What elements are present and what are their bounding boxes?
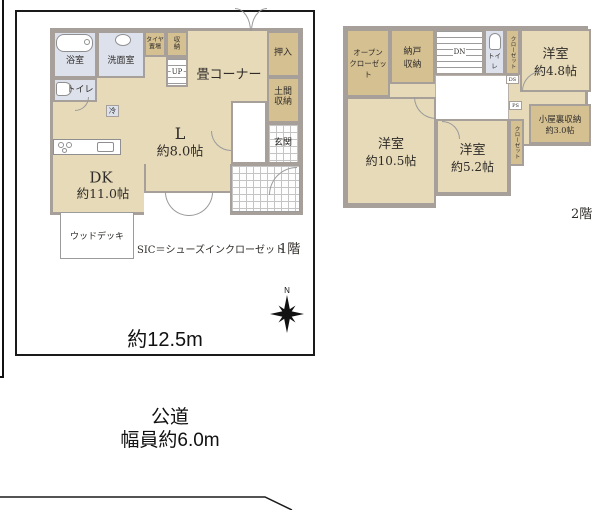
room-105-name: 洋室 bbox=[378, 133, 404, 152]
room-52-name: 洋室 bbox=[459, 139, 485, 158]
room-52-size: 約5.2帖 bbox=[451, 158, 494, 175]
stairs-down-label: DN bbox=[453, 48, 467, 56]
toilet-1f-label: トイレ bbox=[66, 85, 93, 95]
ps-label: PS bbox=[512, 103, 519, 109]
hallway-2f bbox=[435, 75, 509, 121]
floor2-plan: オープン クローゼット 納戸 収納 DN トイレ クローゼット DS 洋室 約4… bbox=[343, 26, 588, 208]
living-size-label: 約8.0帖 bbox=[157, 146, 204, 161]
refrigerator-label: 冷 bbox=[109, 106, 116, 116]
site-width-label: 約12.5m bbox=[15, 323, 315, 352]
toilet-fixture-2f bbox=[489, 33, 501, 50]
closet-b-label: クローゼット bbox=[513, 126, 521, 159]
stairs-up-label: UP bbox=[171, 69, 184, 77]
room-105-size: 約10.5帖 bbox=[366, 152, 417, 169]
genkan-label: 玄関 bbox=[274, 138, 292, 148]
floor1-plan: 冷 浴室 洗面室 トイレ タイヤ 置場 収 納 UP 畳コーナー 押入 土間 収… bbox=[50, 28, 303, 215]
floorplan-page: 冷 浴室 洗面室 トイレ タイヤ 置場 収 納 UP 畳コーナー 押入 土間 収… bbox=[0, 0, 600, 510]
door-arc-hall-ld bbox=[211, 131, 231, 151]
room-attic-storage: 小屋裏収納 約3.0帖 bbox=[529, 104, 591, 144]
tire-storage-label: タイヤ 置場 bbox=[146, 37, 164, 50]
compass-n-label: N bbox=[284, 286, 290, 295]
kitchen-sink bbox=[97, 142, 114, 152]
left-boundary-line bbox=[2, 0, 4, 378]
living-name-label: L bbox=[175, 125, 186, 143]
bath-drain bbox=[84, 39, 90, 45]
washroom-label: 洗面室 bbox=[107, 56, 134, 66]
room-48-name: 洋室 bbox=[542, 43, 568, 62]
wash-sink bbox=[115, 34, 131, 46]
wood-deck: ウッドデッキ bbox=[60, 212, 134, 259]
ds-box: DS bbox=[506, 75, 519, 84]
ps-box: PS bbox=[509, 101, 522, 110]
hallway-1f bbox=[231, 101, 267, 164]
oshiire-label: 押入 bbox=[274, 48, 292, 58]
stairs-down: DN bbox=[435, 29, 484, 75]
doma-storage-label: 土間 収納 bbox=[274, 87, 292, 107]
floor1-label: 1階 bbox=[279, 238, 300, 257]
nando-label-2: 収納 bbox=[403, 57, 421, 70]
nando-label-1: 納戸 bbox=[403, 44, 421, 57]
closet-a: クローゼット bbox=[505, 29, 520, 75]
open-closet-label-1: オープン bbox=[353, 47, 383, 58]
closet-b: クローゼット bbox=[509, 119, 524, 166]
dk-name-label: DK bbox=[89, 170, 112, 187]
sic-note: SIC＝シューズインクローゼット bbox=[137, 241, 285, 256]
refrigerator-box: 冷 bbox=[106, 105, 119, 117]
room-nando-storage: 納戸 収納 bbox=[390, 29, 435, 84]
left-boundary-tick bbox=[0, 376, 4, 378]
attic-size: 約3.0帖 bbox=[546, 125, 575, 136]
dk-size-label: 約11.0帖 bbox=[77, 187, 130, 201]
room-open-closet: オープン クローゼット bbox=[346, 29, 390, 97]
storage-1f-label: 収 納 bbox=[174, 37, 181, 52]
bottom-strip-2f bbox=[436, 194, 511, 211]
ds-label: DS bbox=[509, 77, 516, 83]
attic-name: 小屋裏収納 bbox=[539, 113, 582, 125]
toilet-2f-label: トイレ bbox=[486, 50, 503, 70]
stove-burner-3 bbox=[62, 148, 67, 153]
floor2-label: 2階 bbox=[571, 203, 592, 222]
closet-a-label: クローゼット bbox=[509, 36, 517, 69]
stove-burner-2 bbox=[66, 142, 72, 148]
road-width-label: 幅員約6.0m bbox=[0, 425, 340, 452]
open-closet-label-2: クローゼット bbox=[348, 58, 388, 80]
dk-right-wall bbox=[144, 164, 146, 193]
bathroom-label: 浴室 bbox=[66, 56, 84, 66]
door-arc-toilet-1f bbox=[75, 97, 89, 111]
road-edge-line bbox=[0, 488, 600, 510]
wood-deck-label: ウッドデッキ bbox=[70, 229, 124, 242]
tatami-corner-label: 畳コーナー bbox=[196, 69, 261, 84]
